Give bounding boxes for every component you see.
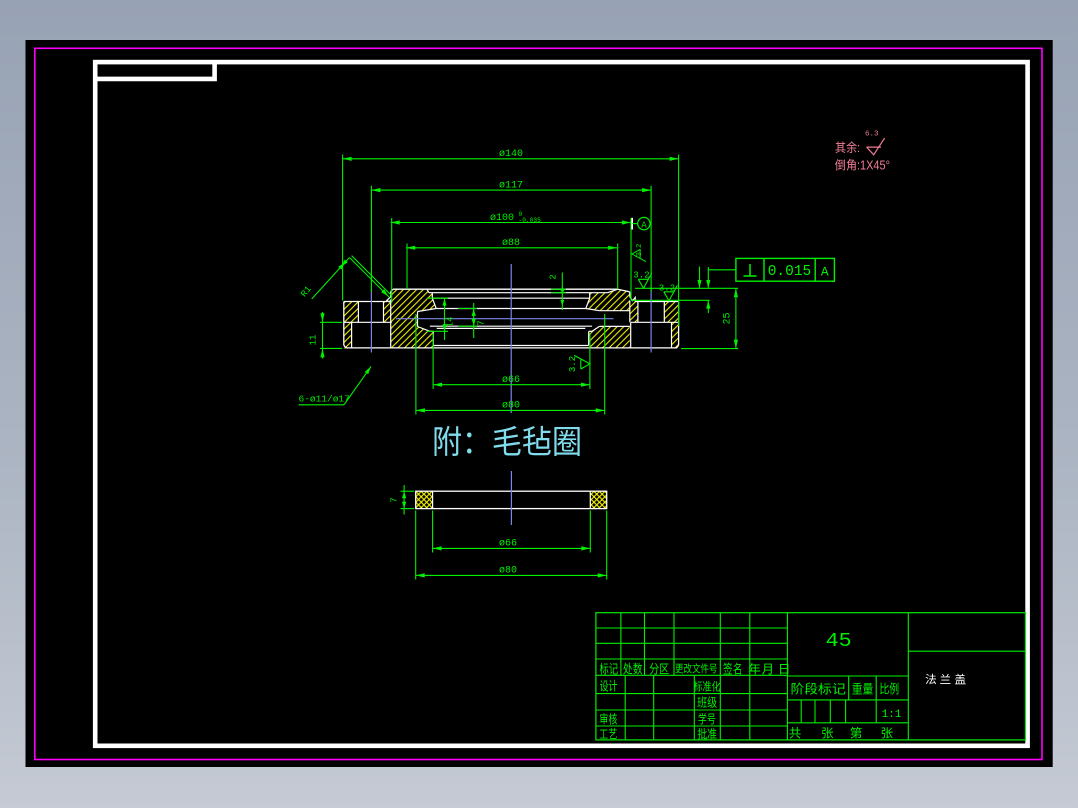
svg-text:3.2: 3.2 — [636, 244, 644, 257]
svg-text:标记: 标记 — [600, 658, 619, 677]
svg-text:第: 第 — [850, 722, 863, 741]
svg-text:签名: 签名 — [723, 658, 743, 677]
svg-text:法 兰 盖: 法 兰 盖 — [925, 672, 967, 688]
svg-text:张: 张 — [880, 722, 893, 741]
svg-text:ø100: ø100 — [490, 213, 514, 224]
svg-text:月: 月 — [762, 658, 775, 677]
svg-text:ø66: ø66 — [502, 375, 520, 386]
svg-text:设计: 设计 — [599, 676, 617, 695]
svg-text:6.3: 6.3 — [865, 131, 879, 139]
svg-text:A: A — [641, 220, 647, 230]
svg-text:工艺: 工艺 — [599, 723, 617, 742]
svg-text:张: 张 — [821, 722, 834, 741]
svg-text:年: 年 — [748, 658, 761, 677]
svg-text:分区: 分区 — [649, 658, 670, 677]
svg-text:ø117: ø117 — [499, 180, 523, 191]
svg-text:倒角:1X45°: 倒角:1X45° — [835, 155, 890, 174]
svg-text:ø80: ø80 — [499, 566, 517, 577]
svg-text:1:1: 1:1 — [882, 709, 902, 721]
svg-text:7: 7 — [477, 320, 487, 325]
svg-text:共: 共 — [789, 722, 802, 741]
svg-text:ø66: ø66 — [499, 539, 517, 550]
svg-text:2: 2 — [548, 274, 558, 279]
svg-text:重量: 重量 — [852, 678, 874, 697]
svg-text:7: 7 — [390, 497, 400, 502]
svg-text:ø80: ø80 — [502, 401, 520, 412]
svg-text:-0.035: -0.035 — [519, 217, 542, 224]
svg-text:批准: 批准 — [697, 723, 717, 742]
svg-text:附：毛毡圈: 附：毛毡圈 — [432, 416, 582, 464]
svg-text:45: 45 — [826, 630, 852, 652]
svg-text:3.2: 3.2 — [568, 356, 578, 372]
svg-text:ø140: ø140 — [499, 149, 523, 160]
svg-text:处数: 处数 — [623, 658, 643, 677]
svg-text:其余:: 其余: — [835, 137, 860, 156]
svg-text:11: 11 — [309, 335, 319, 346]
svg-text:14: 14 — [446, 317, 456, 328]
svg-text:阶段标记: 阶段标记 — [791, 678, 847, 697]
svg-text:0.015: 0.015 — [768, 264, 812, 280]
svg-text:更改文件号: 更改文件号 — [675, 661, 718, 677]
svg-text:A: A — [821, 265, 829, 280]
svg-text:比例: 比例 — [879, 678, 899, 697]
svg-text:6-ø11/ø17: 6-ø11/ø17 — [299, 394, 350, 405]
svg-text:25: 25 — [723, 312, 734, 324]
svg-text:日: 日 — [778, 658, 791, 677]
svg-text:ø88: ø88 — [502, 238, 520, 249]
